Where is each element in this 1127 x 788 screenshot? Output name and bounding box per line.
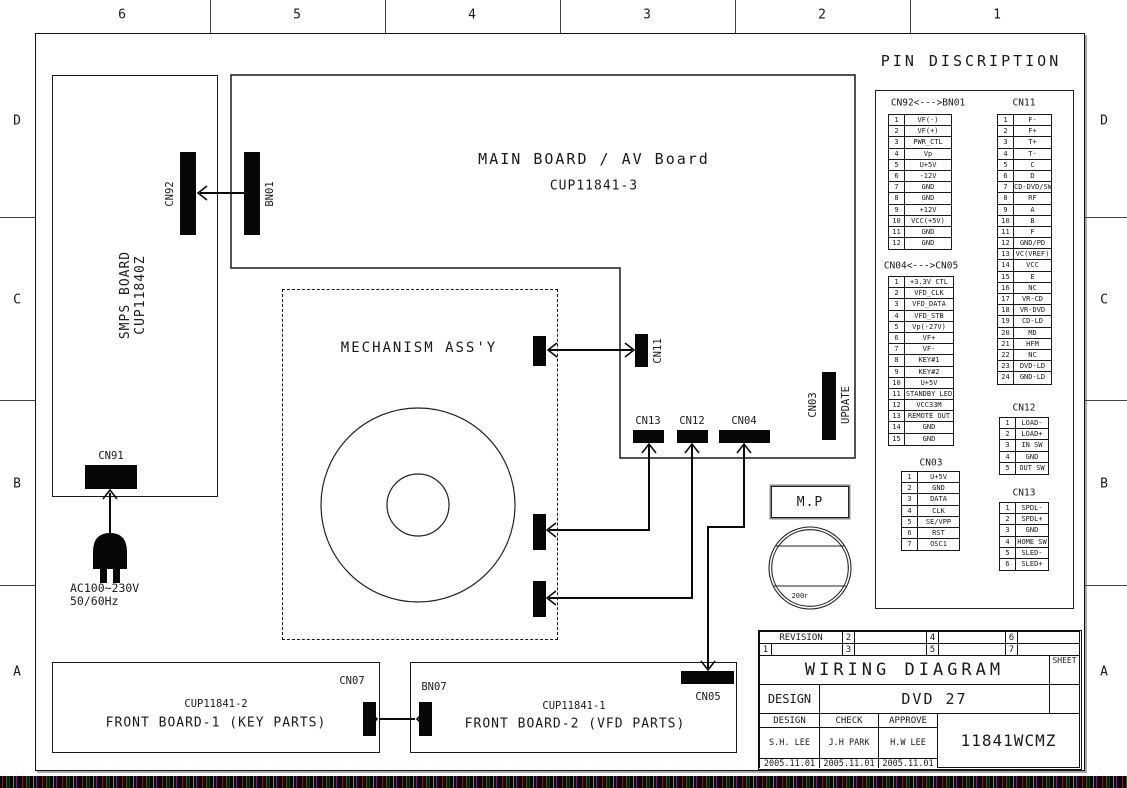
approval-date: 2005.11.01	[878, 758, 938, 768]
mp-box: M.P	[771, 486, 849, 518]
pin-number: 22	[998, 350, 1014, 360]
pin-row: 7OSC1	[902, 539, 959, 550]
pintable-cn13: 1SPDL-2SPDL+3GND4HOME SW5SLED-6SLED+	[999, 502, 1049, 571]
pin-number: 5	[1000, 548, 1016, 558]
bn07-label: BN07	[421, 681, 446, 693]
pin-signal: A	[1014, 205, 1051, 215]
pin-row: 3GND	[1000, 525, 1048, 536]
pin-signal: U+5V	[918, 472, 959, 482]
approval-name: H.W LEE	[878, 727, 938, 759]
pin-row: 2GND	[902, 483, 959, 494]
pin-signal: CD-DVD/SW	[1014, 182, 1051, 192]
pin-row: 3PWR_CTL	[889, 137, 951, 148]
smps-board-name: SMPS BOARD	[118, 251, 133, 339]
pin-number: 7	[998, 182, 1014, 192]
zone-row-label: B	[1100, 477, 1108, 492]
pin-row: 17VR-CD	[998, 294, 1051, 305]
pin-number: 6	[998, 171, 1014, 181]
approval-name: S.H. LEE	[759, 727, 820, 759]
pin-row: 1VF(-)	[889, 115, 951, 126]
front-board-1-code: CUP11841-2	[184, 698, 247, 710]
pin-signal: VCC(+5V)	[905, 216, 951, 226]
mech-connector-2	[533, 514, 546, 550]
pin-number: 7	[889, 182, 905, 192]
approval-date: 2005.11.01	[759, 758, 820, 768]
pin-signal: VFD_STB	[905, 311, 953, 321]
cn92-label: CN92	[164, 181, 176, 206]
zone-row-label: C	[13, 293, 21, 308]
pin-row: 1LOAD-	[1000, 418, 1048, 429]
pin-signal: Vp	[905, 149, 951, 159]
pin-row: 3VFD_DATA	[889, 299, 953, 310]
pin-number: 1	[889, 115, 905, 125]
pin-signal: GND	[905, 227, 951, 237]
pin-signal: VC(VREF)	[1014, 249, 1051, 259]
pintable-cn12: 1LOAD-2LOAD+3IN SW4GND5OUT SW	[999, 417, 1049, 475]
pin-number: 5	[1000, 463, 1016, 474]
front-board-2-code: CUP11841-1	[542, 700, 605, 712]
ac-input-label: AC100~230V 50/60Hz	[70, 582, 139, 608]
pin-number: 9	[889, 367, 905, 377]
main-board-code: CUP11841-3	[550, 179, 638, 194]
pin-row: 3DATA	[902, 494, 959, 505]
pin-signal: VF(-)	[905, 115, 951, 125]
pin-row: 5U+5V	[889, 160, 951, 171]
pin-signal: GND	[905, 434, 953, 445]
pin-signal: IN SW	[1016, 440, 1048, 450]
pin-signal: E	[1014, 272, 1051, 282]
pin-row: 8GND	[889, 193, 951, 204]
bn01-connector	[244, 152, 260, 235]
pin-number: 4	[889, 149, 905, 159]
cn13-connector	[633, 430, 664, 443]
zone-row-label: A	[13, 665, 21, 680]
pin-signal: F	[1014, 227, 1051, 237]
drawing-number: 11841WCMZ	[937, 713, 1080, 768]
pin-row: 8RF	[998, 193, 1051, 204]
pin-row: 24GND-LD	[998, 372, 1051, 383]
pin-row: 11STANDBY LED	[889, 389, 953, 400]
zone-row-label: B	[13, 477, 21, 492]
pin-signal: NC	[1014, 283, 1051, 293]
pin-signal: VR-CD	[1014, 294, 1051, 304]
pintable-cn04-cn05: 1+3.3V CTL2VFD_CLK3VFD_DATA4VFD_STB5Vp(-…	[888, 276, 954, 446]
pintable-title-cn92-bn01: CN92<--->BN01	[891, 98, 965, 109]
pin-row: 22NC	[998, 350, 1051, 361]
pin-signal: U+5V	[905, 160, 951, 170]
pin-number: 3	[998, 137, 1014, 147]
pin-signal: B	[1014, 216, 1051, 226]
pin-number: 2	[1000, 514, 1016, 524]
title-block: REVISION 2 4 6 1 3 5 7 WIRING DIAGRAM SH…	[758, 630, 1082, 770]
pin-row: 18VR-DVD	[998, 305, 1051, 316]
pin-number: 2	[902, 483, 918, 493]
pin-number: 4	[998, 149, 1014, 159]
pin-number: 3	[1000, 440, 1016, 450]
pin-number: 6	[889, 171, 905, 181]
cn03-connector	[822, 372, 836, 440]
zone-tick	[385, 0, 386, 33]
pin-row: 6D	[998, 171, 1051, 182]
pin-number: 15	[998, 272, 1014, 282]
pin-number: 21	[998, 339, 1014, 349]
pin-signal: VR-DVD	[1014, 305, 1051, 315]
pin-signal: LOAD-	[1016, 418, 1048, 428]
pin-number: 1	[889, 277, 905, 287]
pin-row: 2F+	[998, 126, 1051, 137]
cn91-connector	[85, 465, 137, 489]
pin-row: 15E	[998, 272, 1051, 283]
zone-col-label: 6	[118, 8, 126, 23]
zone-col-label: 4	[468, 8, 476, 23]
zone-tick	[1085, 585, 1127, 586]
pin-number: 8	[998, 193, 1014, 203]
pin-number: 7	[902, 539, 918, 550]
zone-tick	[560, 0, 561, 33]
pin-number: 5	[998, 160, 1014, 170]
pin-signal: VFD_CLK	[905, 288, 953, 298]
pin-row: 1+3.3V CTL	[889, 277, 953, 288]
pin-row: 11GND	[889, 227, 951, 238]
pin-number: 4	[1000, 537, 1016, 547]
pin-row: 10VCC(+5V)	[889, 216, 951, 227]
zone-row-label: D	[1100, 114, 1108, 129]
pin-number: 9	[998, 205, 1014, 215]
cn92-connector	[180, 152, 196, 235]
pin-signal: T+	[1014, 137, 1051, 147]
pin-row: 5C	[998, 160, 1051, 171]
wiring-diagram-sheet: 6 5 4 3 2 1 D C B A D C B A	[0, 0, 1127, 788]
cn12-connector	[677, 430, 708, 443]
pin-number: 15	[889, 434, 905, 445]
pin-number: 12	[889, 400, 905, 410]
sheet-label: SHEET	[1049, 655, 1080, 685]
pin-number: 8	[889, 193, 905, 203]
pin-signal: GND	[918, 483, 959, 493]
pin-row: 19CD-LD	[998, 316, 1051, 327]
bn01-label: BN01	[264, 181, 276, 206]
zone-tick	[1085, 217, 1127, 218]
cn11-connector	[635, 334, 648, 367]
pin-row: 5SE/VPP	[902, 517, 959, 528]
pin-signal: NC	[1014, 350, 1051, 360]
pin-row: 10B	[998, 216, 1051, 227]
ac-frequency: 50/60Hz	[70, 595, 139, 608]
stamp-year-text: 200г	[792, 592, 809, 600]
pin-number: 11	[998, 227, 1014, 237]
zone-row-label: D	[13, 114, 21, 129]
cn05-label: CN05	[695, 691, 720, 703]
pin-signal: VFD_DATA	[905, 299, 953, 309]
pin-row: 12GND/PD	[998, 238, 1051, 249]
pin-signal: -12V	[905, 171, 951, 181]
pin-signal: DVD-LD	[1014, 361, 1051, 371]
pin-signal: REMOTE OUT	[905, 411, 953, 421]
pin-number: 5	[902, 517, 918, 527]
pin-row: 8KEY#1	[889, 355, 953, 366]
mechanism-label: MECHANISM ASS'Y	[341, 340, 497, 356]
pin-signal: SPDL+	[1016, 514, 1048, 524]
pin-signal: VF-	[905, 344, 953, 354]
pin-row: 7VF-	[889, 344, 953, 355]
mp-label: M.P	[797, 495, 823, 510]
main-board-name: MAIN BOARD / AV Board	[478, 150, 710, 168]
zone-tick	[735, 0, 736, 33]
pin-row: 3IN SW	[1000, 440, 1048, 451]
pin-row: 7CD-DVD/SW	[998, 182, 1051, 193]
pin-number: 14	[889, 422, 905, 432]
pin-signal: DATA	[918, 494, 959, 504]
zone-col-label: 1	[993, 8, 1001, 23]
pin-number: 3	[902, 494, 918, 504]
pin-signal: GND/PD	[1014, 238, 1051, 248]
pin-number: 16	[998, 283, 1014, 293]
cn91-label: CN91	[98, 450, 123, 462]
bn07-connector	[419, 702, 432, 736]
zone-tick	[0, 400, 35, 401]
pin-signal: GND	[1016, 452, 1048, 462]
pin-number: 1	[1000, 503, 1016, 513]
cn03-label: CN03	[807, 392, 819, 417]
pin-row: 1SPDL-	[1000, 503, 1048, 514]
pin-row: 16NC	[998, 283, 1051, 294]
pin-row: 9+12V	[889, 205, 951, 216]
zone-row-label: C	[1100, 293, 1108, 308]
pin-signal: HOME SW	[1016, 537, 1048, 547]
pin-number: 3	[889, 299, 905, 309]
pin-number: 2	[889, 126, 905, 136]
cn04-connector	[719, 430, 770, 443]
pin-number: 18	[998, 305, 1014, 315]
pin-signal: VCC33M	[905, 400, 953, 410]
pin-number: 2	[998, 126, 1014, 136]
pin-signal: GND	[905, 238, 951, 249]
pintable-title-cn11: CN11	[1013, 98, 1036, 109]
pin-row: 21HFM	[998, 339, 1051, 350]
pintable-cn03: 1U+5V2GND3DATA4CLK5SE/VPP6RST7OSC1	[901, 471, 960, 551]
cn11-label: CN11	[652, 338, 664, 363]
cn05-connector	[681, 671, 734, 684]
approval-col-check: CHECK	[819, 713, 879, 728]
pin-number: 12	[889, 238, 905, 249]
pin-signal: GND	[1016, 525, 1048, 535]
pin-number: 5	[889, 322, 905, 332]
pin-number: 3	[1000, 525, 1016, 535]
pin-signal: CD-LD	[1014, 316, 1051, 326]
pintable-title-cn12: CN12	[1013, 403, 1036, 414]
zone-col-label: 3	[643, 8, 651, 23]
front-board-1-name: FRONT BOARD-1 (KEY PARTS)	[106, 716, 327, 731]
pin-signal: LOAD+	[1016, 429, 1048, 439]
pin-number: 1	[998, 115, 1014, 125]
pin-signal: VF(+)	[905, 126, 951, 136]
pin-number: 13	[889, 411, 905, 421]
model-name: DVD 27	[819, 684, 1050, 714]
pin-row: 2VF(+)	[889, 126, 951, 137]
zone-row-label: A	[1100, 665, 1108, 680]
zone-tick	[210, 0, 211, 33]
pin-row: 2VFD_CLK	[889, 288, 953, 299]
pin-number: 11	[889, 389, 905, 399]
pin-row: 5Vp(-27V)	[889, 322, 953, 333]
pin-number: 1	[1000, 418, 1016, 428]
approval-date: 2005.11.01	[819, 758, 879, 768]
zone-col-label: 5	[293, 8, 301, 23]
smps-board-title: SMPS BOARD CUP11840Z	[118, 251, 148, 339]
pin-signal: +3.3V CTL	[905, 277, 953, 287]
pin-number: 10	[998, 216, 1014, 226]
pin-number: 9	[889, 205, 905, 215]
pin-row: 7GND	[889, 182, 951, 193]
pin-signal: SLED-	[1016, 548, 1048, 558]
pin-signal: GND	[905, 422, 953, 432]
zone-col-label: 2	[818, 8, 826, 23]
pin-signal: Vp(-27V)	[905, 322, 953, 332]
pin-number: 2	[889, 288, 905, 298]
pin-signal: D	[1014, 171, 1051, 181]
cn07-connector	[363, 702, 376, 736]
pintable-cn92-bn01: 1VF(-)2VF(+)3PWR_CTL4Vp5U+5V6-12V7GND8GN…	[888, 114, 952, 250]
pin-number: 12	[998, 238, 1014, 248]
pin-signal: CLK	[918, 506, 959, 516]
pin-signal: F+	[1014, 126, 1051, 136]
pin-row: 5SLED-	[1000, 548, 1048, 559]
pin-number: 6	[1000, 559, 1016, 570]
pin-number: 23	[998, 361, 1014, 371]
pin-row: 23DVD-LD	[998, 361, 1051, 372]
pin-number: 4	[902, 506, 918, 516]
pin-row: 2LOAD+	[1000, 429, 1048, 440]
pin-signal: KEY#2	[905, 367, 953, 377]
pin-row: 6RST	[902, 528, 959, 539]
pin-row: 9A	[998, 205, 1051, 216]
pin-row: 6SLED+	[1000, 559, 1048, 570]
pin-signal: GND	[905, 193, 951, 203]
pin-row: 4T-	[998, 149, 1051, 160]
pin-row: 15GND	[889, 434, 953, 445]
pin-signal: HFM	[1014, 339, 1051, 349]
approval-col-design: DESIGN	[759, 713, 820, 728]
pin-signal: RF	[1014, 193, 1051, 203]
pin-number: 20	[998, 328, 1014, 338]
pin-row: 13VC(VREF)	[998, 249, 1051, 260]
pin-row: 14VCC	[998, 260, 1051, 271]
pin-number: 7	[889, 344, 905, 354]
pin-number: 2	[1000, 429, 1016, 439]
pin-number: 6	[889, 333, 905, 343]
pin-signal: OSC1	[918, 539, 959, 550]
pin-row: 6VF+	[889, 333, 953, 344]
pin-number: 6	[902, 528, 918, 538]
pintable-cn11: 1F-2F+3T+4T-5C6D7CD-DVD/SW8RF9A10B11F12G…	[997, 114, 1052, 385]
pin-row: 4VFD_STB	[889, 311, 953, 322]
pin-signal: SLED+	[1016, 559, 1048, 570]
pin-row: 1U+5V	[902, 472, 959, 483]
cn03-update-label: UPDATE	[840, 386, 852, 424]
pin-row: 12GND	[889, 238, 951, 249]
pin-row: 4Vp	[889, 149, 951, 160]
pin-row: 20MD	[998, 328, 1051, 339]
pin-row: 4GND	[1000, 452, 1048, 463]
pin-number: 24	[998, 372, 1014, 383]
pin-row: 2SPDL+	[1000, 514, 1048, 525]
pin-signal: VF+	[905, 333, 953, 343]
zone-tick	[0, 585, 35, 586]
pin-number: 17	[998, 294, 1014, 304]
pin-signal: GND-LD	[1014, 372, 1051, 383]
cn12-label: CN12	[679, 415, 704, 427]
pin-signal: RST	[918, 528, 959, 538]
pin-signal: PWR_CTL	[905, 137, 951, 147]
pin-number: 1	[902, 472, 918, 482]
pin-row: 9KEY#2	[889, 367, 953, 378]
pin-number: 19	[998, 316, 1014, 326]
pin-number: 14	[998, 260, 1014, 270]
mech-connector-3	[533, 581, 546, 617]
pintable-title-cn13: CN13	[1013, 488, 1036, 499]
pin-row: 1F-	[998, 115, 1051, 126]
pin-row: 10U+5V	[889, 378, 953, 389]
smps-board-code: CUP11840Z	[133, 251, 148, 339]
pin-row: 11F	[998, 227, 1051, 238]
pin-number: 10	[889, 378, 905, 388]
design-row-label: DESIGN	[759, 684, 820, 714]
pin-row: 4HOME SW	[1000, 537, 1048, 548]
pin-number: 11	[889, 227, 905, 237]
doc-title: WIRING DIAGRAM	[759, 655, 1050, 685]
pin-row: 13REMOTE OUT	[889, 411, 953, 422]
pin-number: 13	[998, 249, 1014, 259]
pin-row: 5OUT SW	[1000, 463, 1048, 474]
pin-signal: U+5V	[905, 378, 953, 388]
zone-tick	[1085, 400, 1127, 401]
pin-row: 4CLK	[902, 506, 959, 517]
mech-connector-1	[533, 336, 546, 366]
pin-signal: SE/VPP	[918, 517, 959, 527]
pin-number: 4	[1000, 452, 1016, 462]
pin-number: 8	[889, 355, 905, 365]
pintable-title-cn04-cn05: CN04<--->CN05	[884, 261, 958, 272]
pin-row: 6-12V	[889, 171, 951, 182]
pin-row: 12VCC33M	[889, 400, 953, 411]
pin-signal: SPDL-	[1016, 503, 1048, 513]
pin-signal: MD	[1014, 328, 1051, 338]
pintable-title-cn03: CN03	[920, 458, 943, 469]
pin-signal: +12V	[905, 205, 951, 215]
zone-tick	[910, 0, 911, 33]
cn04-label: CN04	[731, 415, 756, 427]
approval-col-approve: APPROVE	[878, 713, 938, 728]
pin-number: 4	[889, 311, 905, 321]
pin-signal: F-	[1014, 115, 1051, 125]
zone-tick	[0, 217, 35, 218]
pin-row: 3T+	[998, 137, 1051, 148]
pin-row: 14GND	[889, 422, 953, 433]
approval-name: J.H PARK	[819, 727, 879, 759]
bottom-scan-strip	[0, 776, 1127, 788]
pin-number: 3	[889, 137, 905, 147]
pin-signal: OUT SW	[1016, 463, 1048, 474]
pin-number: 10	[889, 216, 905, 226]
pin-signal: STANDBY LED	[905, 389, 953, 399]
pin-signal: T-	[1014, 149, 1051, 159]
pin-signal: VCC	[1014, 260, 1051, 270]
pin-number: 5	[889, 160, 905, 170]
pin-signal: C	[1014, 160, 1051, 170]
cn07-label: CN07	[339, 675, 364, 687]
sheet-diagonal-cell	[1049, 684, 1080, 714]
pin-signal: GND	[905, 182, 951, 192]
